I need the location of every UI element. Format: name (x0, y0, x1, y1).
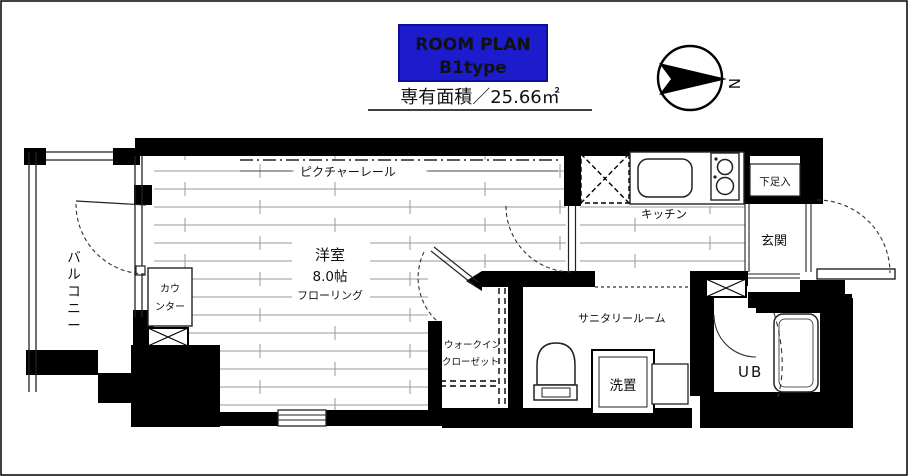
room-name-label: 洋室 (315, 246, 345, 264)
kitchen-label: キッチン (641, 207, 687, 221)
shaft-xbox-2 (706, 279, 746, 297)
floor-plan-svg: ROOM PLAN B1type 専有面積／25.66㎡ N ピクチャーレール (0, 0, 908, 476)
laundry-label: 洗置 (610, 378, 637, 394)
compass-arrow-notch (660, 75, 668, 83)
stove (711, 153, 739, 200)
sanitary-label: サニタリールーム (578, 312, 666, 325)
window-bottom (278, 410, 326, 426)
floor-plan-page: ROOM PLAN B1type 専有面積／25.66㎡ N ピクチャーレール (0, 0, 908, 476)
compass-arrow (659, 63, 727, 95)
compass-n-label: N (725, 78, 743, 89)
header: ROOM PLAN B1type 専有面積／25.66㎡ N (368, 25, 743, 110)
wic-label-1: ウォークイン (444, 340, 501, 351)
fridge-space (581, 154, 629, 203)
shaft-xbox-1 (148, 328, 188, 346)
counter-label-1: カウ (160, 283, 180, 295)
bathtub (774, 314, 818, 392)
unit-bath-label: UB (738, 363, 763, 381)
entrance-door-leaf (817, 269, 895, 279)
room-floor-label: フローリング (297, 288, 363, 302)
counter-label-2: ンター (155, 301, 185, 313)
badge-line2: B1type (439, 58, 507, 78)
ub-door-arc (714, 315, 756, 357)
wic-label-2: クローゼット (442, 356, 499, 368)
area-label: 専有面積／25.66㎡ (400, 86, 560, 108)
window-balcony-top (46, 152, 113, 160)
entrance-door-arc (817, 200, 890, 273)
window-west (135, 156, 145, 317)
badge-line1: ROOM PLAN (415, 35, 531, 55)
entrance-label: 玄関 (761, 234, 787, 249)
room-size-label: 8.0帖 (313, 269, 348, 285)
room-door-leaf (569, 206, 576, 272)
kitchen-sink (638, 159, 692, 197)
shoe-storage-label: 下足入 (759, 176, 791, 188)
picture-rail-label: ピクチャーレール (300, 165, 396, 179)
washbasin-box (652, 364, 688, 404)
counter-box (148, 268, 192, 326)
balcony-label: バルコニー (67, 250, 81, 334)
compass: N (658, 46, 743, 110)
toilet-fixture (534, 343, 577, 400)
